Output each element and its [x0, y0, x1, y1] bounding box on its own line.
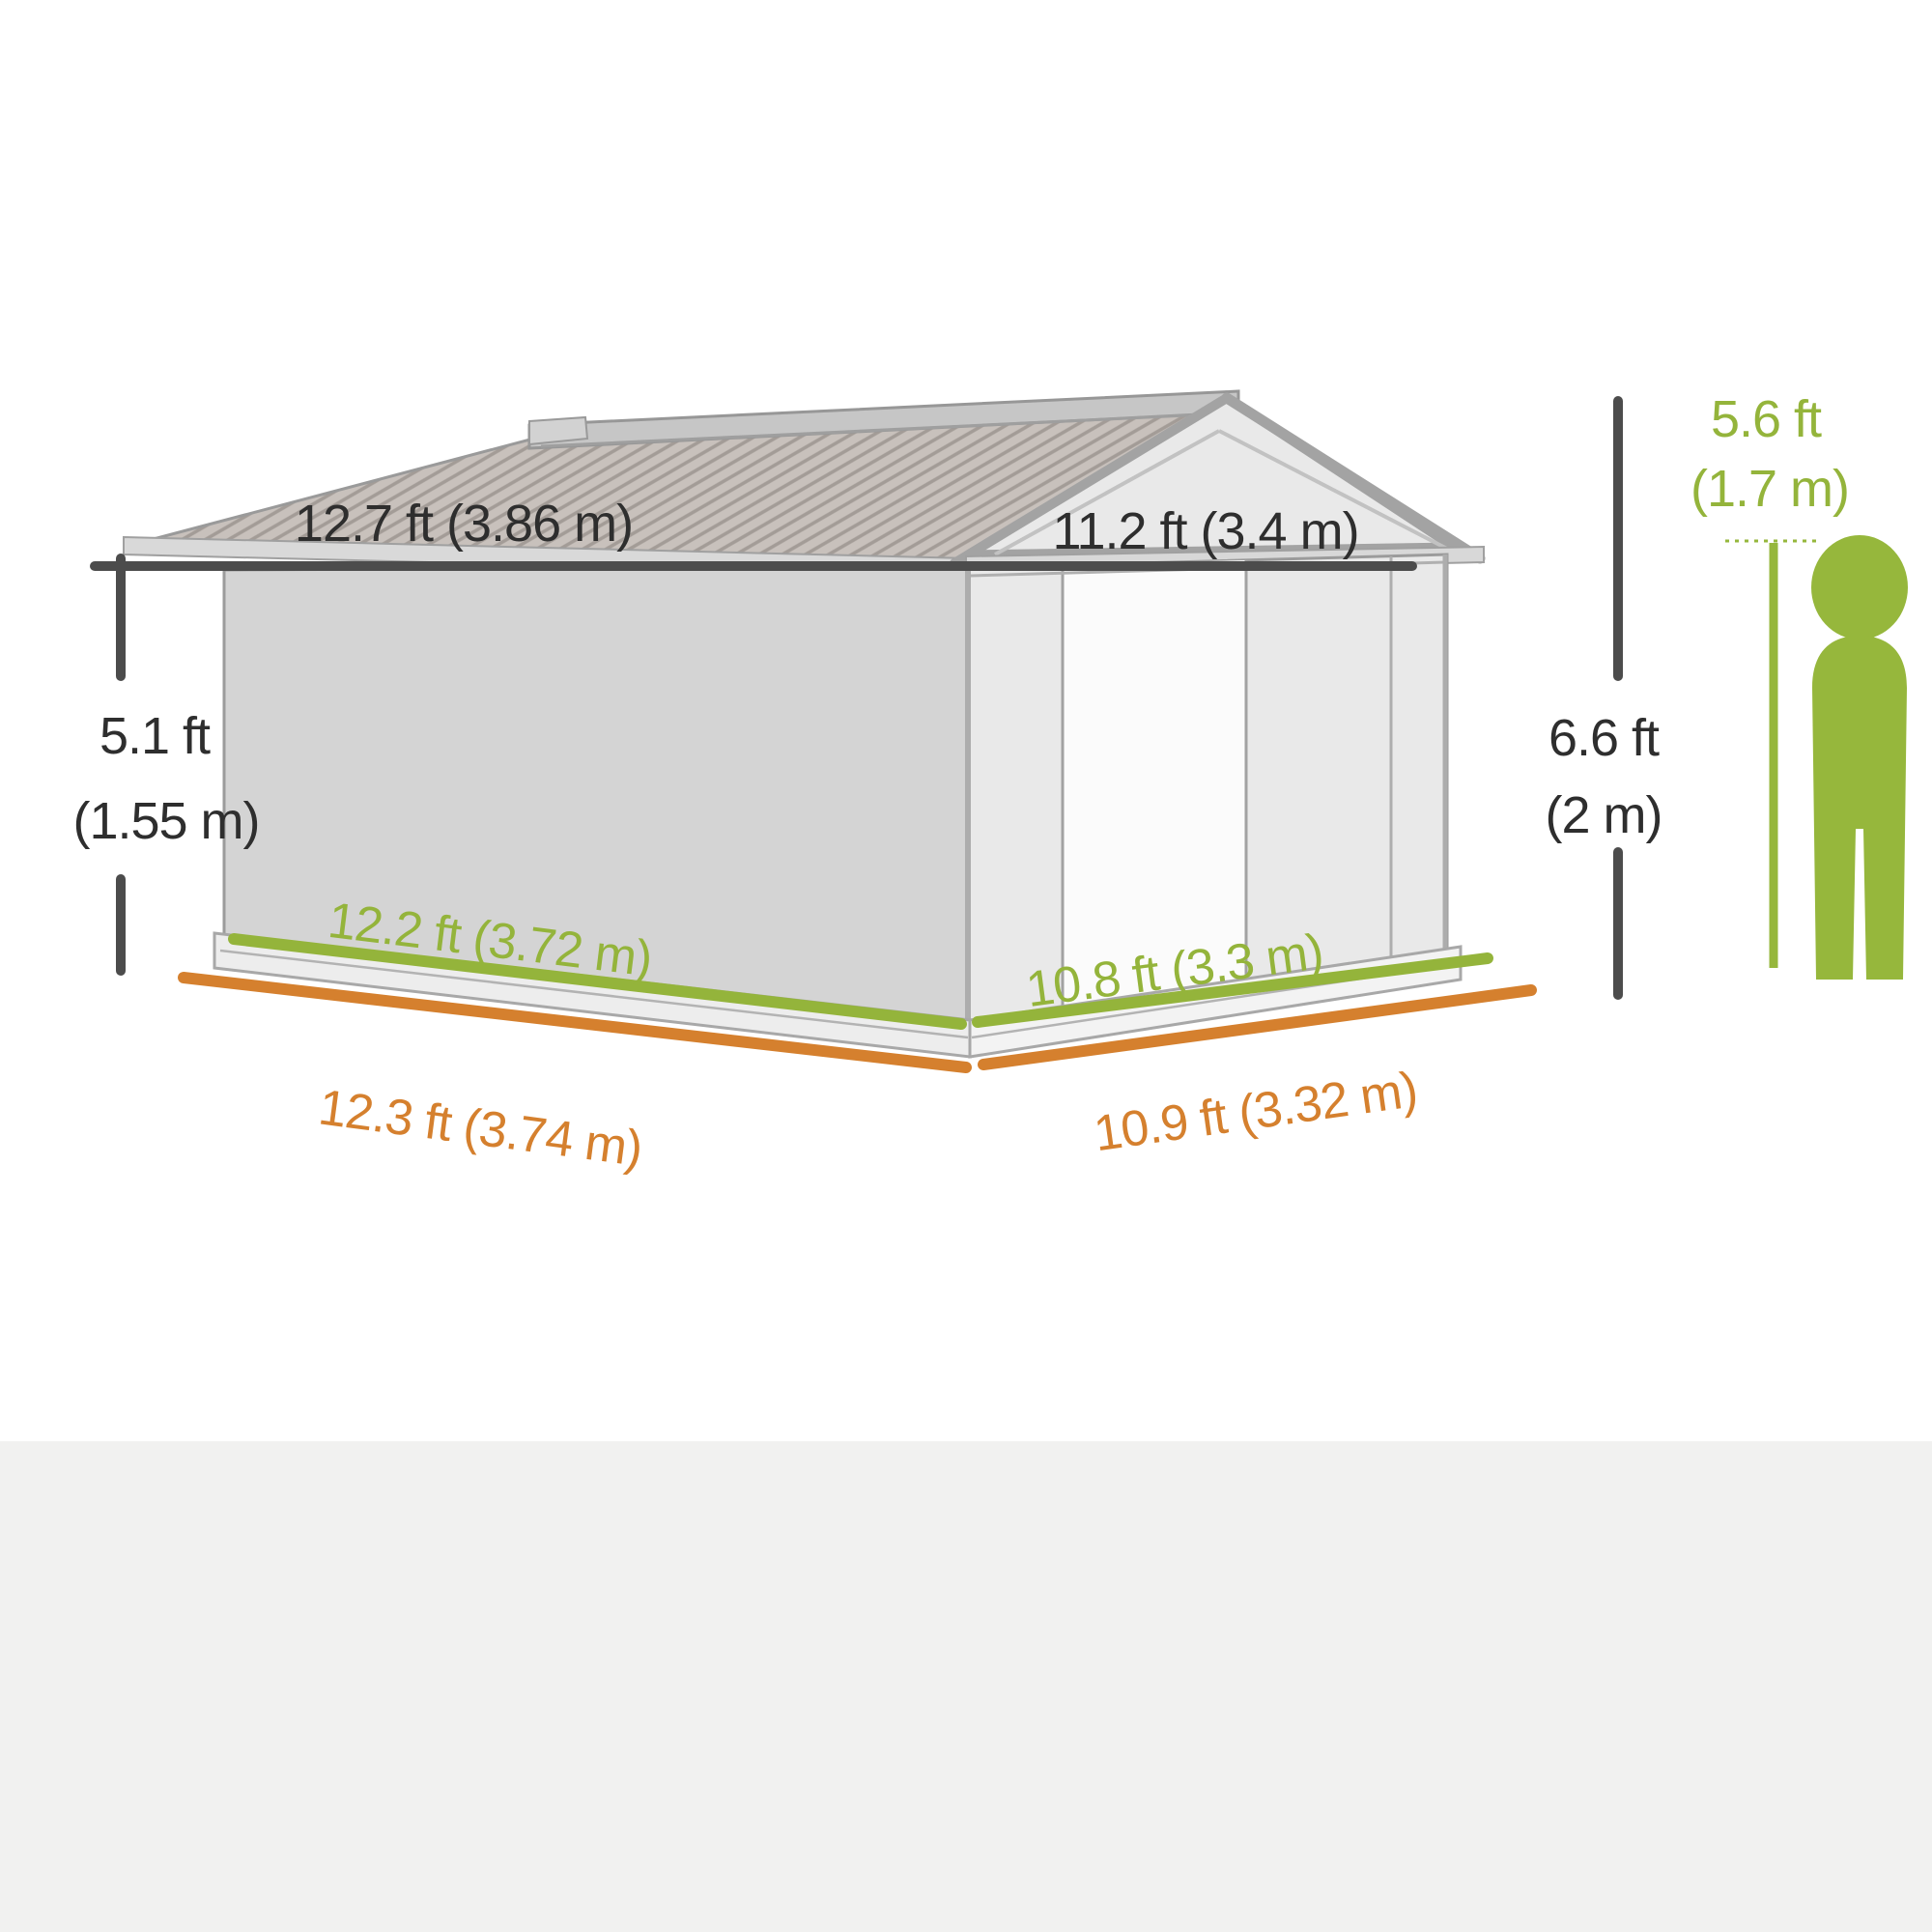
info-panel: Note: Before purchasing this product, it… — [0, 1441, 1932, 1932]
label-eave-height-m: (1.55 m) — [72, 792, 259, 850]
label-person-height-m: (1.7 m) — [1690, 460, 1849, 518]
label-bottom-front: 10.9 ft (3.32 m) — [1091, 1062, 1420, 1162]
label-bottom-side: 12.3 ft (3.74 m) — [316, 1079, 645, 1177]
shed-dimension-infographic: 12.7 ft (3.86 m) 11.2 ft (3.4 m) 5.1 ft … — [0, 0, 1932, 1932]
person-body — [1812, 636, 1907, 980]
roof-ridge-end-cap — [529, 417, 587, 444]
label-roof-side: 12.7 ft (3.86 m) — [295, 495, 633, 553]
shed-diagram: 12.7 ft (3.86 m) 11.2 ft (3.4 m) 5.1 ft … — [0, 0, 1932, 1449]
label-total-height-m: (2 m) — [1546, 786, 1662, 844]
label-eave-height-ft: 5.1 ft — [99, 707, 211, 765]
person-head — [1811, 535, 1908, 639]
label-person-height-ft: 5.6 ft — [1711, 390, 1822, 448]
label-total-height-ft: 6.6 ft — [1548, 709, 1660, 767]
label-roof-front: 11.2 ft (3.4 m) — [1052, 502, 1358, 560]
